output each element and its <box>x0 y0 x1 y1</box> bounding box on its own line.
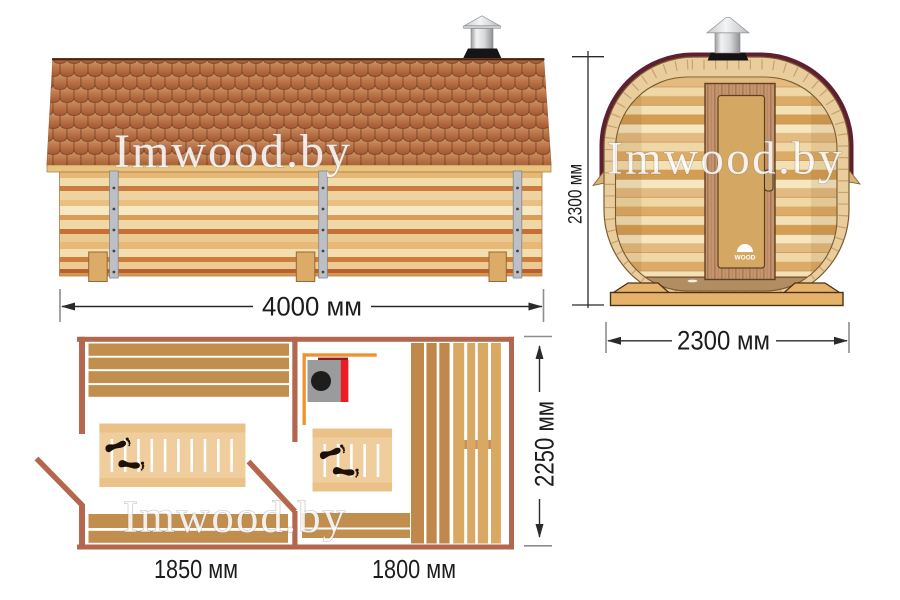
svg-text:4000 мм: 4000 мм <box>262 292 362 322</box>
svg-text:1800 мм: 1800 мм <box>372 556 456 584</box>
svg-text:2300 мм: 2300 мм <box>566 164 587 224</box>
svg-text:2250 мм: 2250 мм <box>530 401 560 487</box>
svg-text:Imwood.by: Imwood.by <box>114 125 352 178</box>
svg-text:WOOD: WOOD <box>735 255 756 262</box>
svg-text:1850 мм: 1850 мм <box>154 556 238 584</box>
svg-text:Imwood.by: Imwood.by <box>123 492 347 542</box>
svg-text:2300 мм: 2300 мм <box>677 326 770 356</box>
svg-text:Imwood.by: Imwood.by <box>607 133 844 185</box>
